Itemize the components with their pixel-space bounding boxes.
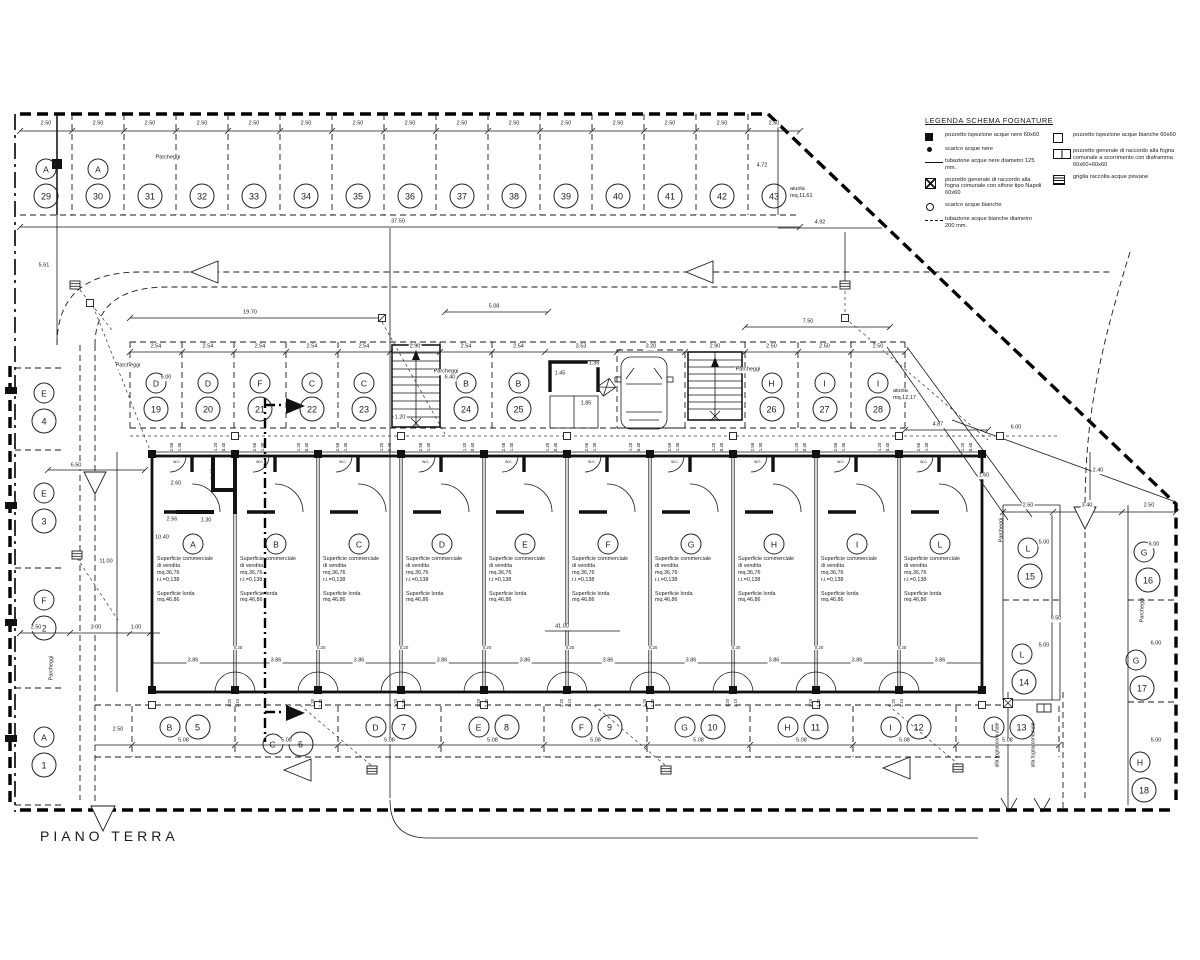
dim-label: 0.40	[388, 442, 392, 452]
unit-info-text: Superficie commerciale di vendita mq.36,…	[904, 556, 982, 604]
legend-right-column: pozzetto ispezione acque bianche 60x60po…	[1053, 132, 1189, 230]
dim-label: 2.58	[917, 442, 921, 452]
stall-number: 31	[138, 184, 163, 209]
stall-number: 28	[866, 397, 891, 422]
stall-number: 35	[346, 184, 371, 209]
unit-letter: B	[266, 534, 287, 555]
dim-label: 2.58	[751, 442, 755, 452]
stall-number: 43	[762, 184, 787, 209]
dim-label: 1.30	[261, 442, 265, 452]
dim-label: 1.40	[211, 468, 217, 481]
dim-label: 2.10	[402, 698, 406, 708]
gsq-symbol-icon	[1053, 174, 1073, 185]
dim-label: 1.30	[676, 442, 680, 452]
dim-label: 0.20	[316, 646, 327, 650]
unit-letter: I	[847, 534, 868, 555]
stall-letter: B	[159, 717, 180, 738]
dim-label: 3.86	[270, 658, 283, 664]
dim-label: 2.10	[319, 698, 323, 708]
dim-label: 41.00	[554, 624, 570, 630]
dim-label: 3.40	[1081, 503, 1094, 509]
dim-label: 0.40	[222, 442, 226, 452]
stall-number: 4	[32, 409, 57, 434]
dim-label: 0.40	[720, 442, 724, 452]
stall-number: 9	[597, 715, 622, 740]
wc-label: w.c.	[338, 460, 347, 464]
dim-label: 6.00	[1010, 425, 1023, 431]
dim-label: 0.20	[897, 646, 908, 650]
parcheggi-label: Parcheggi	[999, 517, 1005, 544]
legend-item-text: scarico acque bianche	[945, 202, 1002, 209]
dim-label: 1.60	[978, 473, 991, 479]
stall-number: 12	[906, 715, 931, 740]
stall-dim: 2.50	[872, 344, 885, 350]
dim-label: 11.00	[98, 559, 113, 565]
dim-label: 1.30	[510, 442, 514, 452]
stall-dim: 2.50	[664, 121, 677, 127]
stall-number: 16	[1136, 568, 1161, 593]
legend-item: scarico acque nere	[925, 146, 1043, 153]
legend-item: pozzetto generale di raccordo alla fogna…	[925, 177, 1043, 198]
dim-label: 1.20	[878, 442, 882, 452]
parcheggi-label: Parcheggi	[115, 363, 142, 369]
stall-dim: 2.50	[144, 121, 157, 127]
stall-number: 10	[700, 715, 725, 740]
stall-number: 37	[450, 184, 475, 209]
stall-letter: A	[88, 159, 109, 180]
dim-label: 1.20	[892, 698, 896, 708]
dim-label: 3.86	[851, 658, 864, 664]
dim-label: 1.20	[643, 698, 647, 708]
unit-info-text: Superficie commerciale di vendita mq.36,…	[572, 556, 650, 604]
stall-letter: E	[468, 717, 489, 738]
stall-number: 15	[1018, 564, 1043, 589]
wc-label: w.c.	[919, 460, 928, 464]
stall-letter: D	[198, 373, 219, 394]
stall-number: 7	[391, 715, 416, 740]
dim-label: 3.86	[519, 658, 532, 664]
xsq-symbol-icon	[925, 177, 945, 189]
dline-symbol-icon	[925, 216, 945, 221]
stall-number: 29	[34, 184, 59, 209]
stall-letter: H	[1130, 752, 1151, 773]
unit-letter: L	[930, 534, 951, 555]
dim-label: 0.20	[731, 646, 742, 650]
dim-label: 1.85	[580, 401, 593, 407]
stall-dim: 5.08	[1001, 738, 1014, 744]
dim-label: 1.30	[842, 442, 846, 452]
stall-dim: 2.90	[709, 344, 722, 350]
stall-letter: F	[571, 717, 592, 738]
wc-label: w.c.	[172, 460, 181, 464]
stall-dim: 2.50	[818, 344, 831, 350]
dim-label: 0.40	[886, 442, 890, 452]
dim-label: 4.87	[932, 422, 945, 428]
stall-letter: G	[674, 717, 695, 738]
dim-label: 0.40	[803, 442, 807, 452]
stall-number: 23	[352, 397, 377, 422]
dim-label: 0.40	[969, 442, 973, 452]
dim-label: 5.00	[1150, 738, 1163, 744]
stall-number: 17	[1130, 676, 1155, 701]
legend-item-text: tubazione acque nere diametro 125 mm.	[945, 158, 1043, 172]
unit-info-text: Superficie commerciale di vendita mq.36,…	[323, 556, 401, 604]
stall-letter: D	[365, 717, 386, 738]
stall-number: 18	[1132, 778, 1157, 803]
dim-label: 6.50	[70, 463, 83, 469]
stall-letter: A	[36, 159, 57, 180]
stall-dim: 5.08	[589, 738, 602, 744]
stall-letter: I	[814, 373, 835, 394]
unit-info-text: Superficie commerciale di vendita mq.36,…	[821, 556, 899, 604]
circ-symbol-icon	[925, 202, 945, 211]
parcheggi-label: Parcheggi	[49, 655, 55, 682]
stall-letter: G	[1126, 650, 1147, 671]
dim-label: 1.30	[925, 442, 929, 452]
stall-dim: 5.08	[383, 738, 396, 744]
dim-label: 5.00	[160, 375, 173, 381]
dim-label: 0.40	[554, 442, 558, 452]
stall-dim: 2.50	[765, 344, 778, 350]
legend-item: pozzetto generale di raccordo alla fogna…	[1053, 148, 1189, 169]
dim-label: 2.58	[834, 442, 838, 452]
stall-number: 34	[294, 184, 319, 209]
unit-info-text: Superficie commerciale di vendita mq.36,…	[406, 556, 484, 604]
stall-dim: 2.50	[560, 121, 573, 127]
unit-letter: E	[515, 534, 536, 555]
fsq-symbol-icon	[925, 132, 945, 141]
dsq-symbol-icon	[1053, 148, 1073, 159]
dim-label: 2.58	[336, 442, 340, 452]
stall-letter: L	[1018, 538, 1039, 559]
dim-label: 1.20	[629, 442, 633, 452]
stall-letter: C	[262, 734, 283, 755]
parcheggi-label: Parcheggi	[735, 367, 762, 373]
stall-letter: C	[302, 373, 323, 394]
dim-label: 3.86	[353, 658, 366, 664]
stall-dim: 2.50	[196, 121, 209, 127]
dim-label: 1.30	[759, 442, 763, 452]
dim-label: 19.70	[242, 310, 258, 316]
stall-number: 19	[144, 397, 169, 422]
stall-dim: 2.50	[92, 121, 105, 127]
wc-label: w.c.	[670, 460, 679, 464]
wc-label: w.c.	[836, 460, 845, 464]
dim-label: 4.72	[756, 163, 769, 169]
wc-label: w.c.	[753, 460, 762, 464]
stall-dim: 5.08	[177, 738, 190, 744]
stall-dim: 2.50	[612, 121, 625, 127]
dim-label: 1.20	[961, 442, 965, 452]
dim-label: 4.92	[814, 220, 827, 226]
stall-number: 30	[86, 184, 111, 209]
stall-dim: 2.54	[460, 344, 473, 350]
osq-symbol-icon	[1053, 132, 1073, 143]
stall-number: 22	[300, 397, 325, 422]
dim-label: 2.10	[651, 698, 655, 708]
dim-label: 2.50	[1143, 503, 1156, 509]
stall-dim: 2.54	[512, 344, 525, 350]
stall-dim: 5.08	[795, 738, 808, 744]
stall-letter: A	[34, 727, 55, 748]
dot-symbol-icon	[925, 146, 945, 152]
legend-item-text: pozzetto ispezione acque nere 60x60	[945, 132, 1039, 139]
dim-label: 1.20	[228, 698, 232, 708]
stall-number: 24	[454, 397, 479, 422]
floor-plan: 2.5029A2.5030A2.50312.50322.50332.50342.…	[0, 0, 1200, 960]
stall-number: 8	[494, 715, 519, 740]
stall-letter: F	[250, 373, 271, 394]
dim-label: 2.58	[585, 442, 589, 452]
line-symbol-icon	[925, 158, 945, 163]
stall-number: 11	[803, 715, 828, 740]
stall-number: 26	[759, 397, 784, 422]
dim-label: 0.20	[565, 646, 576, 650]
dim-label: 1.30	[344, 442, 348, 452]
stall-number: 25	[506, 397, 531, 422]
stall-dim: 2.50	[248, 121, 261, 127]
stall-dim: 5.08	[280, 738, 293, 744]
stall-dim: 2.50	[352, 121, 365, 127]
dim-label: 1.20	[297, 442, 301, 452]
stall-letter: F	[34, 590, 55, 611]
stall-dim: 2.54	[306, 344, 319, 350]
dim-label: 2.50	[1022, 503, 1035, 509]
dim-label: 1.20	[380, 442, 384, 452]
parcheggi-label: Parcheggi	[155, 155, 182, 161]
stall-number: 42	[710, 184, 735, 209]
unit-info-text: Superficie commerciale di vendita mq.36,…	[157, 556, 235, 604]
dim-label: 3.86	[685, 658, 698, 664]
dim-label: 3.86	[602, 658, 615, 664]
stall-dim: 3.20	[645, 344, 658, 350]
dim-label: 1.45	[554, 371, 567, 377]
stall-number: 14	[1012, 670, 1037, 695]
stall-letter: H	[777, 717, 798, 738]
aiuola-label: aiuola mq.11,61	[790, 186, 813, 200]
unit-info-text: Superficie commerciale di vendita mq.36,…	[240, 556, 318, 604]
legend-item: griglia raccolta acque piovane	[1053, 174, 1189, 185]
dim-label: 5.61	[38, 263, 51, 269]
dim-label: 9.50	[1050, 616, 1063, 622]
dim-label: 1.20	[712, 442, 716, 452]
dim-label: 1.30	[200, 518, 213, 524]
stall-letter: L	[1012, 644, 1033, 665]
dim-label: 3.86	[436, 658, 449, 664]
stall-dim: 2.54	[254, 344, 267, 350]
dim-label: 1.30	[427, 442, 431, 452]
legend-item-text: pozzetto generale di raccordo alla fogna…	[1073, 148, 1189, 169]
dim-label: 1.30	[178, 442, 182, 452]
legend-item-text: pozzetto generale di raccordo alla fogna…	[945, 177, 1043, 198]
stall-dim: 2.54	[202, 344, 215, 350]
legend-item: pozzetto ispezione acque bianche 60x60	[1053, 132, 1189, 143]
stall-dim: 3.53	[575, 344, 588, 350]
dim-label: 2.10	[485, 698, 489, 708]
dim-label: 2.10	[568, 698, 572, 708]
dim-label: 5.00	[1038, 643, 1051, 649]
dim-label: 1.20	[726, 698, 730, 708]
stall-dim: 5.08	[692, 738, 705, 744]
dim-label: 1.20	[560, 698, 564, 708]
stall-dim: 2.50	[300, 121, 313, 127]
dim-label: 6.40	[444, 375, 457, 381]
dim-label: 1.20	[463, 442, 467, 452]
sewer-outlet-label: alla fogna comunale	[1032, 722, 1037, 769]
dim-label: 3.86	[768, 658, 781, 664]
stall-number: 27	[812, 397, 837, 422]
dim-label: 2.58	[253, 442, 257, 452]
dim-label: 6.00	[1150, 641, 1163, 647]
stall-number: 40	[606, 184, 631, 209]
legend-item-text: pozzetto ispezione acque bianche 60x60	[1073, 132, 1176, 139]
legend: LEGENDA SCHEMA FOGNATURE pozzetto ispezi…	[925, 116, 1193, 230]
legend-item: pozzetto ispezione acque nere 60x60	[925, 132, 1043, 141]
stall-dim: 2.50	[404, 121, 417, 127]
dim-label: 1.20	[214, 442, 218, 452]
unit-letter: F	[598, 534, 619, 555]
dim-label: 10.40	[154, 535, 170, 541]
stall-dim: 2.50	[40, 121, 53, 127]
legend-item-text: griglia raccolta acque piovane	[1073, 174, 1148, 181]
unit-letter: G	[681, 534, 702, 555]
dim-label: 0.20	[233, 646, 244, 650]
legend-item: tubazione acque bianche diametro 200 mm.	[925, 216, 1043, 230]
stall-number: 33	[242, 184, 267, 209]
dim-label: 2.58	[170, 442, 174, 452]
stall-letter: E	[34, 383, 55, 404]
stall-dim: 2.50	[508, 121, 521, 127]
stall-dim: 5.08	[898, 738, 911, 744]
dim-label: 1.35	[588, 361, 601, 367]
stall-letter: I	[868, 373, 889, 394]
stall-dim: 2.54	[358, 344, 371, 350]
stall-dim: 2.50	[716, 121, 729, 127]
dim-label: 3.86	[187, 658, 200, 664]
legend-title: LEGENDA SCHEMA FOGNATURE	[925, 116, 1193, 125]
legend-item: tubazione acque nere diametro 125 mm.	[925, 158, 1043, 172]
stall-number: 1	[32, 753, 57, 778]
unit-info-text: Superficie commerciale di vendita mq.36,…	[738, 556, 816, 604]
unit-info-text: Superficie commerciale di vendita mq.36,…	[655, 556, 733, 604]
stall-number: 6	[288, 732, 313, 757]
dim-label: 2.50	[112, 727, 125, 733]
dim-label: 1.20	[795, 442, 799, 452]
dim-label: 2.58	[502, 442, 506, 452]
wc-label: w.c.	[504, 460, 513, 464]
dim-label: 0.20	[482, 646, 493, 650]
dim-label: 2.10	[734, 698, 738, 708]
stall-letter: L	[983, 717, 1004, 738]
dim-label: 3.86	[934, 658, 947, 664]
dim-label: 2.50	[30, 625, 43, 631]
dim-label: 0.40	[471, 442, 475, 452]
stall-number: 32	[190, 184, 215, 209]
dim-label: 2.58	[419, 442, 423, 452]
dim-label: 0.20	[814, 646, 825, 650]
dim-label: 2.10	[900, 698, 904, 708]
dim-label: 2.56	[166, 517, 179, 523]
legend-item-text: scarico acque nere	[945, 146, 993, 153]
wc-label: w.c.	[587, 460, 596, 464]
unit-letter: A	[183, 534, 204, 555]
aiuola-label: aiuola mq.12,17	[893, 388, 916, 402]
wc-label: w.c.	[421, 460, 430, 464]
stall-dim: 2.54	[150, 344, 163, 350]
dim-label: 1.20	[477, 698, 481, 708]
stall-number: 38	[502, 184, 527, 209]
unit-info-text: Superficie commerciale di vendita mq.36,…	[489, 556, 567, 604]
stall-letter: B	[456, 373, 477, 394]
stall-dim: 2.50	[768, 121, 781, 127]
dim-label: 2.10	[817, 698, 821, 708]
drawing-title: PIANO TERRA	[40, 828, 179, 844]
stall-dim: 2.50	[456, 121, 469, 127]
dim-label: 5.08	[488, 304, 501, 310]
dim-label: 1.20	[311, 698, 315, 708]
dim-label: 1.30	[593, 442, 597, 452]
stall-number: 39	[554, 184, 579, 209]
stall-number: 41	[658, 184, 683, 209]
stall-number: 5	[185, 715, 210, 740]
dim-label: 37.50	[390, 219, 406, 225]
dim-label: 1.20	[394, 698, 398, 708]
dim-label: 2.60	[170, 481, 183, 487]
dim-label: 1.00	[130, 625, 143, 631]
legend-item-text: tubazione acque bianche diametro 200 mm.	[945, 216, 1043, 230]
dim-label: 2.58	[668, 442, 672, 452]
dim-label: 3.00	[90, 625, 103, 631]
stall-letter: B	[508, 373, 529, 394]
dim-label: 5.00	[1038, 540, 1051, 546]
dim-label: 2.10	[236, 698, 240, 708]
stall-letter: H	[761, 373, 782, 394]
stall-number: 36	[398, 184, 423, 209]
stall-dim: 5.08	[486, 738, 499, 744]
dim-label: 0.20	[399, 646, 410, 650]
dim-label: 0.40	[305, 442, 309, 452]
stall-letter: I	[880, 717, 901, 738]
stall-letter: C	[354, 373, 375, 394]
unit-letter: C	[349, 534, 370, 555]
dim-label: 7.50	[802, 319, 815, 325]
wc-label: w.c.	[255, 460, 264, 464]
parcheggi-label: Parcheggi	[1140, 597, 1146, 624]
legend-left-column: pozzetto ispezione acque nere 60x60scari…	[925, 132, 1043, 230]
stall-number: 3	[32, 509, 57, 534]
stall-number: 20	[196, 397, 221, 422]
dim-label: 1.20	[394, 415, 407, 421]
dim-label: 2.40	[1092, 468, 1105, 474]
unit-letter: D	[432, 534, 453, 555]
stall-number: 21	[248, 397, 273, 422]
legend-item: scarico acque bianche	[925, 202, 1043, 211]
dim-label: 6.00	[1148, 542, 1161, 548]
stall-dim: 2.90	[409, 344, 422, 350]
dim-label: 0.20	[648, 646, 659, 650]
dim-label: 0.40	[637, 442, 641, 452]
stall-letter: E	[34, 483, 55, 504]
dim-label: 1.20	[809, 698, 813, 708]
sewer-outlet-label: alla fogna comunale	[996, 722, 1001, 769]
dim-label: 1.20	[546, 442, 550, 452]
unit-letter: H	[764, 534, 785, 555]
